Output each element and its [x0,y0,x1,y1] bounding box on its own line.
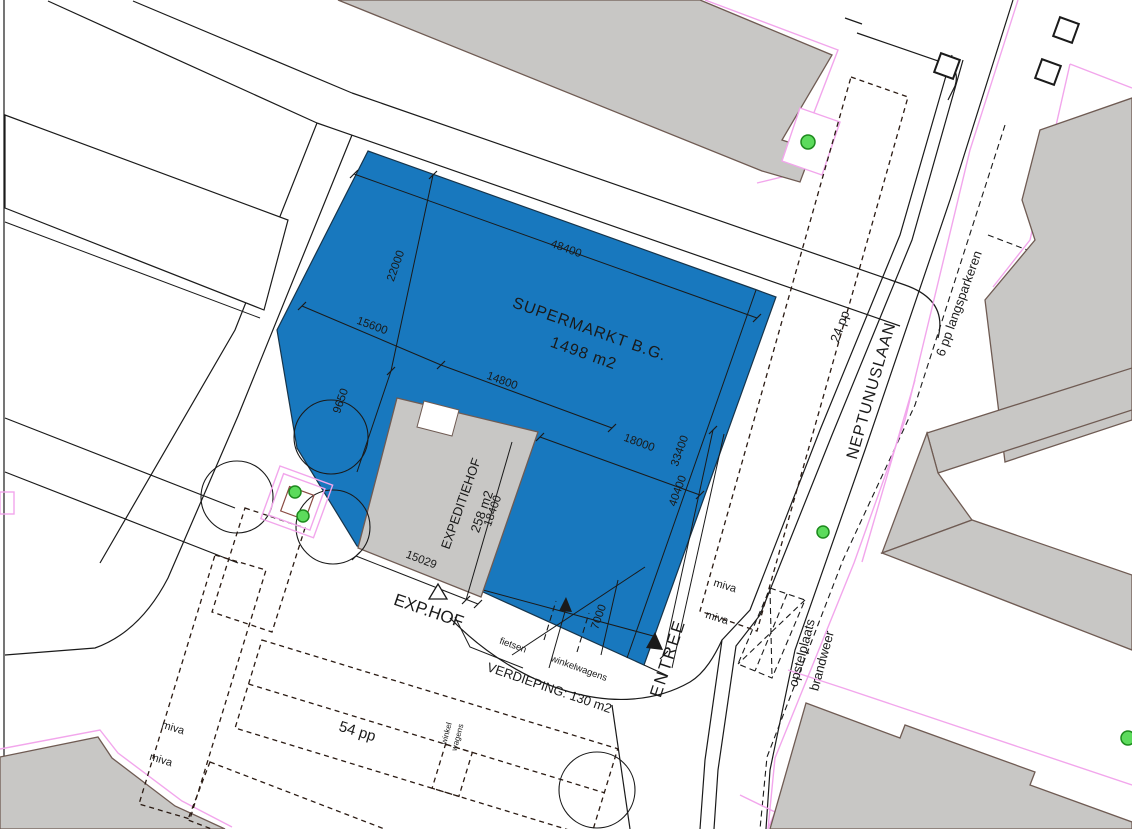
miva-label-3: miva [160,719,187,738]
winkelwagens-cell [432,744,472,796]
site-plan-page: SUPERMARKT B.G. 1498 m2 EXPEDITIEHOF 258… [0,0,1132,829]
miva-label-4: miva [148,751,175,770]
supermarkt-building [277,151,776,668]
miva-label-2: miva [704,609,731,628]
parking-24pp-label: 24 pp [827,309,852,345]
site-plan-drawing: SUPERMARKT B.G. 1498 m2 EXPEDITIEHOF 258… [0,0,1132,829]
exphof-label: EXP.HOF [391,590,466,632]
parking-strip-small-block [212,508,305,632]
winkelwagens-label: winkelwagens [548,653,609,684]
parking-row-bottom [188,762,621,829]
building-top-slab [338,0,840,182]
building-bottom-right [770,703,1132,829]
fietsen-label: fietsen [498,636,528,656]
outlined-building-northwest [5,115,288,318]
langsparkeren-label: 6 pp langsparkeren [933,249,985,359]
miva-label-1: miva [712,577,739,596]
street-neptunuslaan: NEPTUNUSLAAN [844,320,899,461]
building-southeast-l-block [882,368,1132,650]
